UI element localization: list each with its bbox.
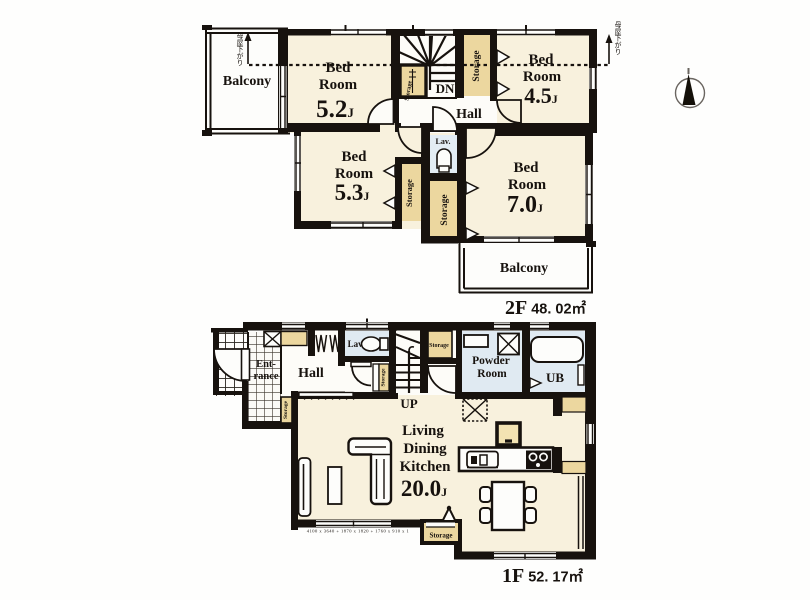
svg-text:Storage: Storage xyxy=(381,368,387,387)
svg-text:Bed: Bed xyxy=(325,60,351,76)
svg-text:4100 x 3640 + 1870 x 1820 + 17: 4100 x 3640 + 1870 x 1820 + 1760 x 910 x… xyxy=(307,529,410,534)
svg-text:Dining: Dining xyxy=(403,441,447,457)
svg-text:Bed: Bed xyxy=(341,149,367,165)
svg-text:UP: UP xyxy=(400,396,417,411)
svg-text:Lav.: Lav. xyxy=(436,137,451,146)
svg-text:Living: Living xyxy=(402,423,444,439)
svg-text:Powder: Powder xyxy=(472,355,510,367)
svg-text:Storage: Storage xyxy=(440,194,450,225)
svg-text:2F48. 02㎡: 2F48. 02㎡ xyxy=(505,297,587,319)
svg-text:Hall: Hall xyxy=(298,366,324,381)
svg-text:Hall: Hall xyxy=(456,107,482,122)
svg-text:Storage: Storage xyxy=(404,179,414,207)
svg-text:Kitchen: Kitchen xyxy=(400,459,451,475)
svg-text:Balcony: Balcony xyxy=(223,74,271,89)
svg-text:Room: Room xyxy=(319,77,358,93)
svg-text:Storage: Storage xyxy=(429,343,449,349)
svg-text:DN: DN xyxy=(436,81,455,96)
svg-text:母屋下がり: 母屋下がり xyxy=(237,32,244,67)
svg-text:Room: Room xyxy=(477,368,507,380)
svg-text:rance: rance xyxy=(253,371,278,382)
svg-text:UB: UB xyxy=(546,370,564,385)
svg-text:Storage: Storage xyxy=(283,400,289,419)
svg-text:Ent-: Ent- xyxy=(256,359,276,370)
svg-text:Balcony: Balcony xyxy=(500,261,548,276)
svg-text:20.0J: 20.0J xyxy=(401,476,447,501)
svg-text:母屋下がり: 母屋下がり xyxy=(615,21,622,56)
svg-text:Storage: Storage xyxy=(430,532,453,540)
svg-text:Room: Room xyxy=(508,177,547,193)
svg-text:1F52. 17㎡: 1F52. 17㎡ xyxy=(502,565,584,587)
svg-text:Bed: Bed xyxy=(513,160,539,176)
